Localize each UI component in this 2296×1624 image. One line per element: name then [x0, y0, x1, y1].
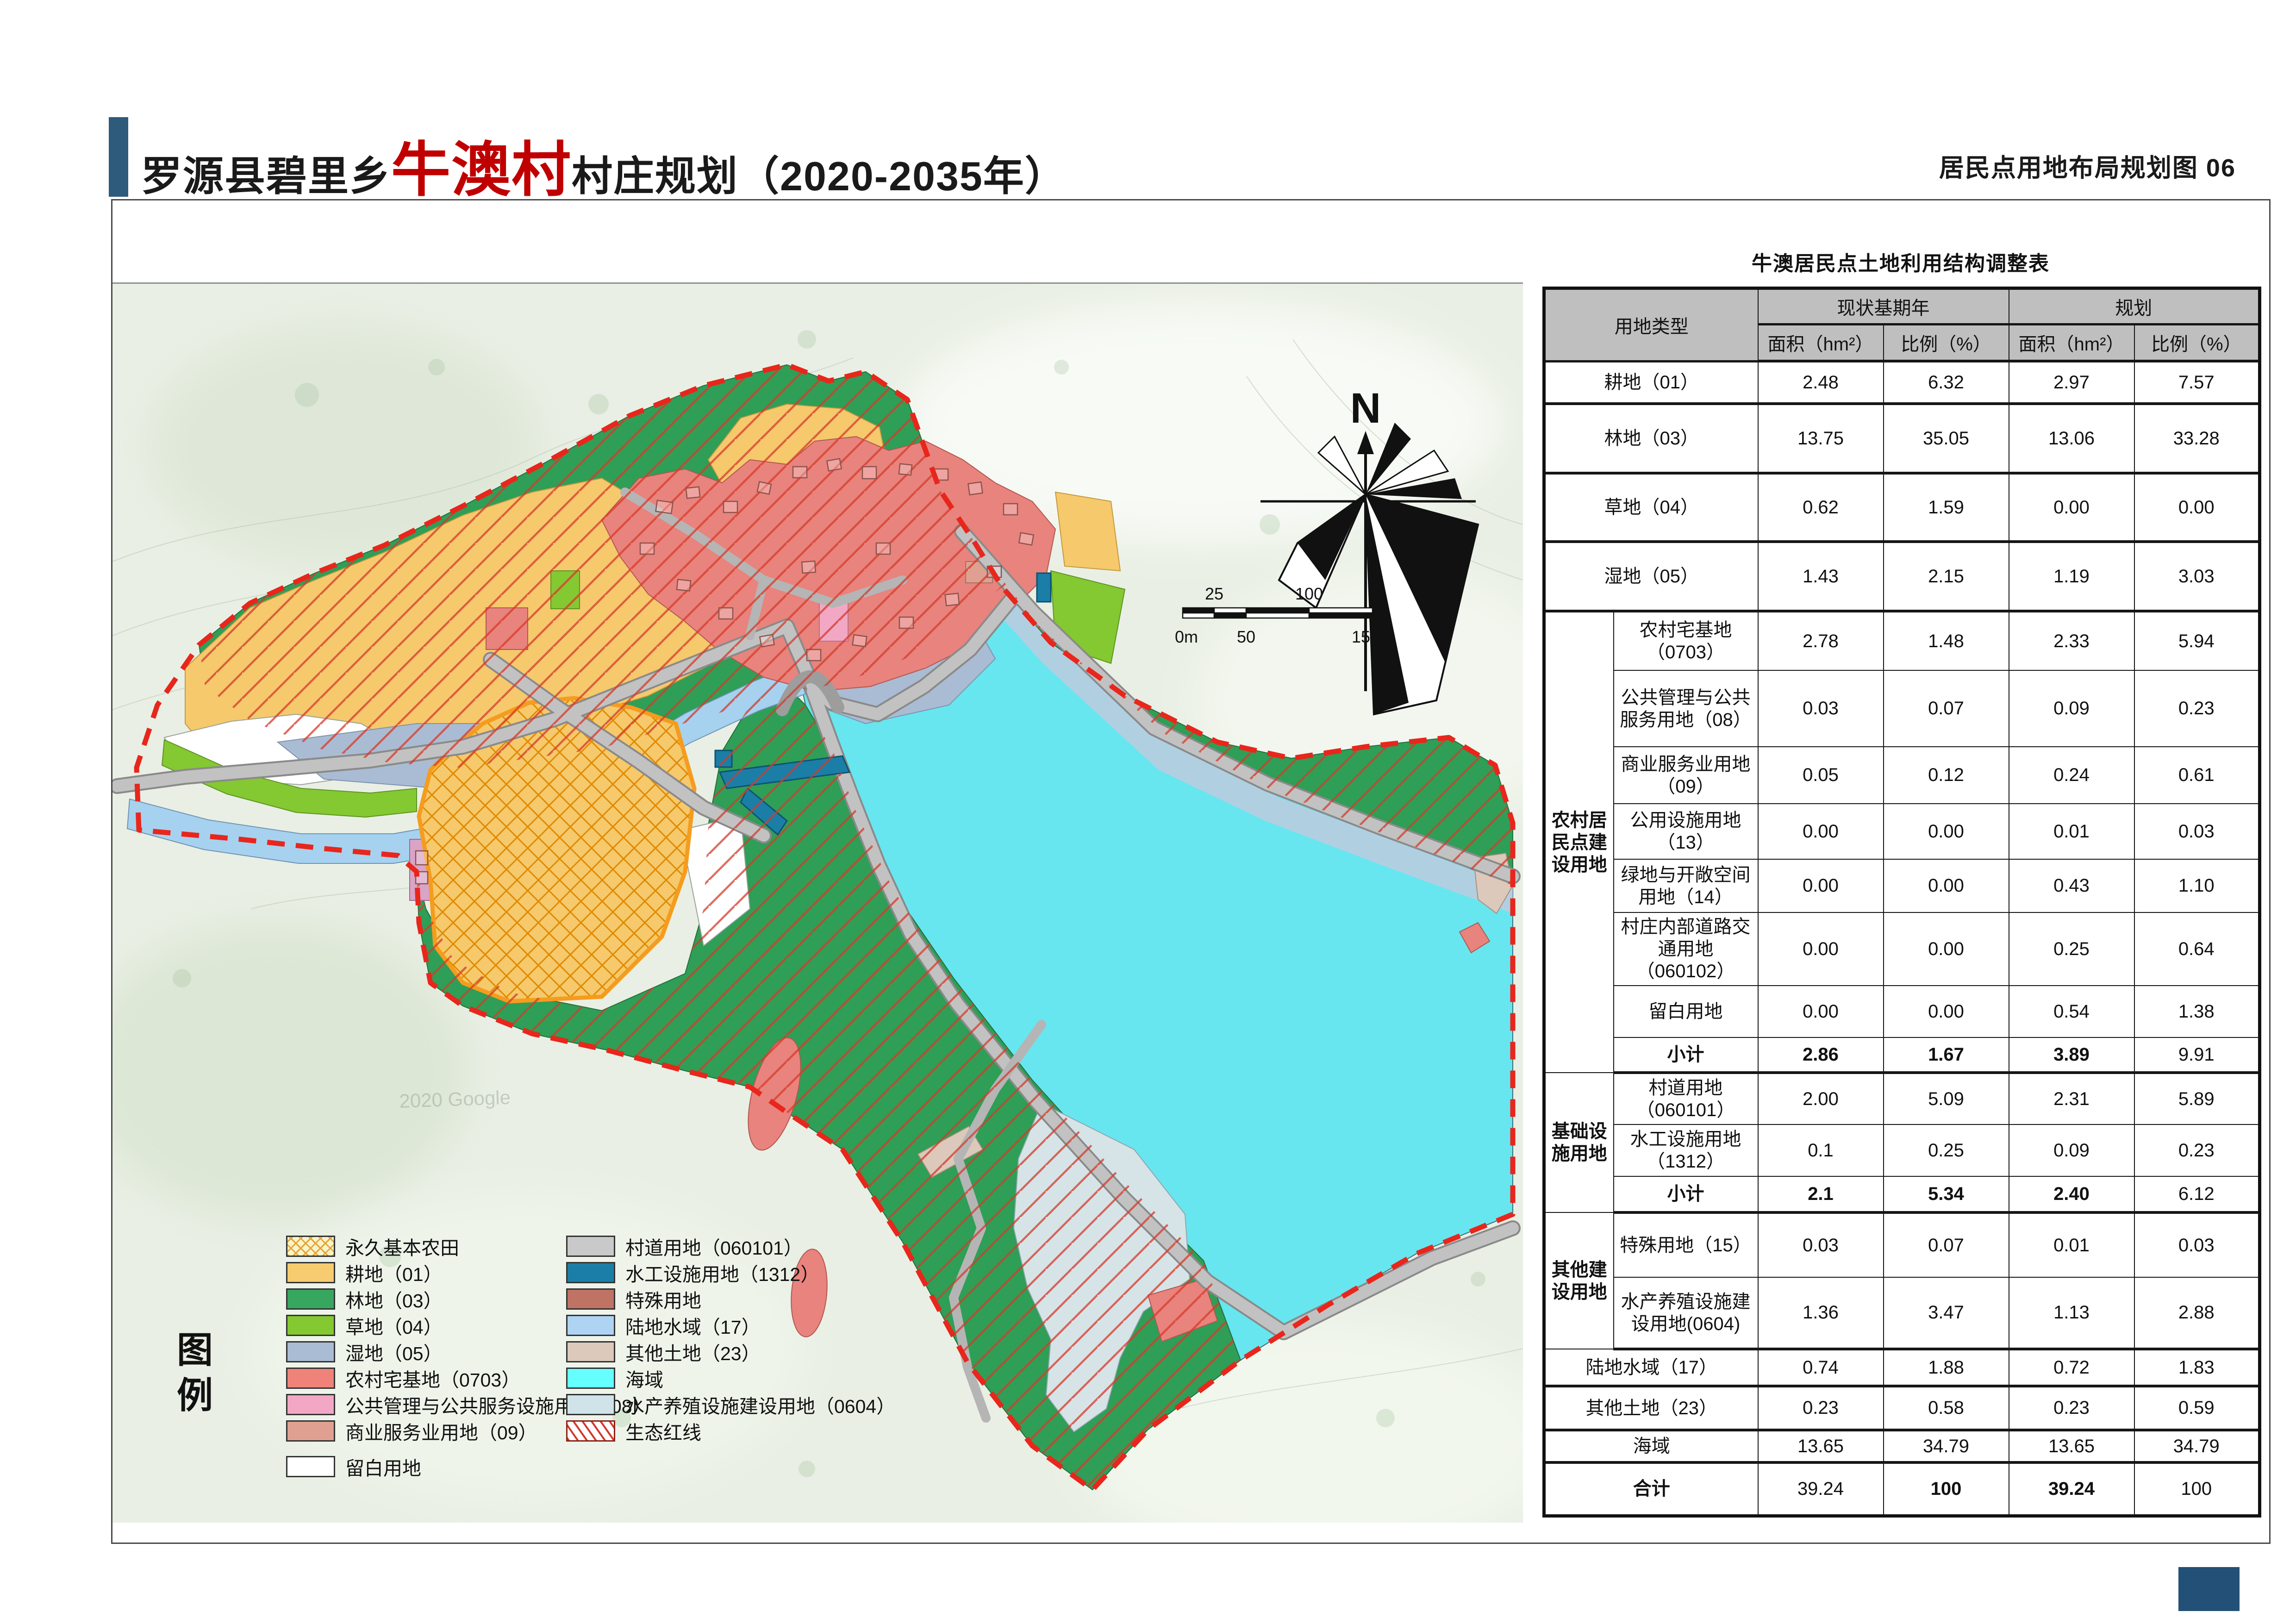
- legend-swatch: [566, 1368, 615, 1389]
- table-value-cell: 1.36: [1758, 1277, 1884, 1349]
- table-value-cell: 5.89: [2134, 1073, 2260, 1124]
- header-planned: 规划: [2009, 288, 2260, 325]
- header-ratio-current: 比例（%）: [1884, 325, 2009, 362]
- table-value-cell: 6.32: [1884, 361, 2009, 404]
- table-value-cell: 39.24: [1758, 1462, 1884, 1516]
- legend-swatch: [566, 1394, 615, 1415]
- table-value-cell: 2.78: [1758, 611, 1884, 670]
- table-value-cell: 2.97: [2009, 361, 2134, 404]
- table-value-cell: 0.61: [2134, 747, 2260, 804]
- table-value-cell: 33.28: [2134, 404, 2260, 473]
- table-value-cell: 13.06: [2009, 404, 2134, 473]
- table-row-label: 湿地（05）: [1544, 542, 1758, 611]
- table-value-cell: 0.00: [1758, 859, 1884, 912]
- table-value-cell: 0.05: [1758, 747, 1884, 804]
- table-value-cell: 13.65: [2009, 1430, 2134, 1462]
- table-row-label: 陆地水域（17）: [1544, 1349, 1758, 1386]
- header-landuse-type: 用地类型: [1544, 288, 1758, 362]
- table-row-label: 公共管理与公共服务用地（08）: [1614, 670, 1758, 747]
- table-value-cell: 0.72: [2009, 1349, 2134, 1386]
- legend-label: 海域: [625, 1364, 663, 1392]
- table-value-cell: 34.79: [1884, 1430, 2009, 1462]
- table-value-cell: 0.54: [2009, 986, 2134, 1037]
- table-value-cell: 0.09: [2009, 1124, 2134, 1176]
- table-value-cell: 7.57: [2134, 361, 2260, 404]
- table-value-cell: 39.24: [2009, 1462, 2134, 1516]
- table-row-label: 其他土地（23）: [1544, 1386, 1758, 1430]
- table-row: 湿地（05）1.432.151.193.03: [1544, 542, 2260, 611]
- page-title: 罗源县碧里乡 牛澳村 村庄规划（2020-2035年）: [141, 111, 1067, 197]
- legend-label: 耕地（01）: [345, 1259, 443, 1287]
- table-value-cell: 1.10: [2134, 859, 2260, 912]
- title-prefix: 罗源县碧里乡: [141, 156, 391, 197]
- table-value-cell: 0.09: [2009, 670, 2134, 747]
- table-value-cell: 0.00: [1758, 912, 1884, 986]
- table-value-cell: 5.94: [2134, 611, 2260, 670]
- legend-swatch: [286, 1262, 335, 1283]
- table-row: 其他建设用地特殊用地（15）0.030.070.010.03: [1544, 1212, 2260, 1277]
- legend-item: 村道用地（060101）: [566, 1235, 803, 1257]
- table-value-cell: 0.03: [1758, 670, 1884, 747]
- header-current-year: 现状基期年: [1758, 288, 2009, 325]
- legend-swatch: [286, 1420, 335, 1442]
- table-row: 村庄内部道路交通用地（060102）0.000.000.250.64: [1544, 912, 2260, 986]
- table-group-label: 其他建设用地: [1544, 1212, 1614, 1349]
- table-value-cell: 0.00: [1758, 986, 1884, 1037]
- table-value-cell: 0.07: [1884, 670, 2009, 747]
- legend-title: 图 例: [176, 1328, 213, 1418]
- svg-text:150m: 150m: [1352, 627, 1393, 646]
- legend-label: 村道用地（060101）: [625, 1232, 803, 1260]
- legend-label: 陆地水域（17）: [625, 1312, 761, 1339]
- table-row: 基础设施用地村道用地（060101）2.005.092.315.89: [1544, 1073, 2260, 1124]
- legend-label: 商业服务业用地（09）: [345, 1417, 537, 1445]
- table-value-cell: 100: [2134, 1462, 2260, 1516]
- table-row: 留白用地0.000.000.541.38: [1544, 986, 2260, 1037]
- legend-item: 永久基本农田: [286, 1235, 459, 1257]
- imagery-watermark: 2020 Google: [399, 1087, 511, 1112]
- table-value-cell: 0.59: [2134, 1386, 2260, 1430]
- svg-text:0m: 0m: [1175, 627, 1198, 646]
- table-row-label: 草地（04）: [1544, 473, 1758, 542]
- table-value-cell: 2.15: [1884, 542, 2009, 611]
- legend-swatch: [566, 1236, 615, 1257]
- legend-label: 水产养殖设施建设用地（0604）: [625, 1391, 895, 1418]
- landuse-table-panel: 牛澳居民点土地利用结构调整表 用地类型 现状基期年 规划 面积（hm²） 比例（…: [1542, 247, 2259, 1518]
- table-value-cell: 13.75: [1758, 404, 1884, 473]
- header-ratio-planned: 比例（%）: [2134, 325, 2260, 362]
- legend-swatch: [286, 1341, 335, 1362]
- legend-item: 生态红线: [566, 1420, 701, 1442]
- legend-swatch: [566, 1341, 615, 1362]
- table-row-label: 耕地（01）: [1544, 361, 1758, 404]
- table-value-cell: 0.74: [1758, 1349, 1884, 1386]
- table-value-cell: 0.58: [1884, 1386, 2009, 1430]
- table-value-cell: 2.31: [2009, 1073, 2134, 1124]
- page-number-block: [2178, 1567, 2240, 1611]
- table-value-cell: 5.09: [1884, 1073, 2009, 1124]
- legend-item: 陆地水域（17）: [566, 1314, 761, 1337]
- table-value-cell: 1.59: [1884, 473, 2009, 542]
- table-value-cell: 0.00: [1884, 859, 2009, 912]
- legend-item: 水工设施用地（1312）: [566, 1262, 819, 1284]
- legend-swatch: [286, 1288, 335, 1310]
- table-value-cell: 34.79: [2134, 1430, 2260, 1462]
- table-value-cell: 0.25: [2009, 912, 2134, 986]
- table-row-label: 公用设施用地（13）: [1614, 804, 1758, 859]
- table-value-cell: 3.47: [1884, 1277, 2009, 1349]
- table-value-cell: 2.1: [1758, 1176, 1884, 1212]
- table-row-label: 商业服务业用地（09）: [1614, 747, 1758, 804]
- table-value-cell: 2.33: [2009, 611, 2134, 670]
- table-row: 水产养殖设施建设用地(0604)1.363.471.132.88: [1544, 1277, 2260, 1349]
- table-row: 小计2.861.673.899.91: [1544, 1037, 2260, 1073]
- table-row-label: 村庄内部道路交通用地（060102）: [1614, 912, 1758, 986]
- table-value-cell: 0.23: [2134, 1124, 2260, 1176]
- content-frame: 2020 Google N: [111, 199, 2271, 1544]
- table-value-cell: 0.1: [1758, 1124, 1884, 1176]
- table-row-label: 小计: [1614, 1176, 1758, 1212]
- table-title: 牛澳居民点土地利用结构调整表: [1542, 247, 2259, 276]
- table-row-label: 合计: [1544, 1462, 1758, 1516]
- legend-label: 留白用地: [345, 1453, 421, 1480]
- legend-item: 水产养殖设施建设用地（0604）: [566, 1393, 895, 1416]
- legend-item: 商业服务业用地（09）: [286, 1420, 537, 1442]
- title-accent-bar: [109, 117, 128, 197]
- planning-map: 2020 Google N: [112, 282, 1523, 1523]
- table-value-cell: 1.38: [2134, 986, 2260, 1037]
- legend-label: 其他土地（23）: [625, 1338, 761, 1366]
- table-row-label: 农村宅基地（0703）: [1614, 611, 1758, 670]
- legend-label: 特殊用地: [625, 1285, 701, 1313]
- legend-label: 水工设施用地（1312）: [625, 1259, 819, 1287]
- table-value-cell: 13.65: [1758, 1430, 1884, 1462]
- legend-swatch: [566, 1262, 615, 1283]
- table-value-cell: 2.48: [1758, 361, 1884, 404]
- table-value-cell: 0.62: [1758, 473, 1884, 542]
- legend-swatch: [286, 1368, 335, 1389]
- legend-swatch: [566, 1420, 615, 1442]
- svg-text:100: 100: [1295, 584, 1323, 603]
- table-value-cell: 0.03: [1758, 1212, 1884, 1277]
- legend-label: 草地（04）: [345, 1312, 443, 1339]
- table-value-cell: 0.00: [1884, 804, 2009, 859]
- table-value-cell: 2.86: [1758, 1037, 1884, 1073]
- table-value-cell: 0.01: [2009, 804, 2134, 859]
- table-row: 陆地水域（17）0.741.880.721.83: [1544, 1349, 2260, 1386]
- table-row-label: 村道用地（060101）: [1614, 1073, 1758, 1124]
- legend-item: 林地（03）: [286, 1288, 443, 1310]
- table-value-cell: 0.01: [2009, 1212, 2134, 1277]
- table-row: 合计39.2410039.24100: [1544, 1462, 2260, 1516]
- legend-label: 湿地（05）: [345, 1338, 443, 1366]
- table-value-cell: 0.07: [1884, 1212, 2009, 1277]
- table-group-label: 基础设施用地: [1544, 1073, 1614, 1212]
- table-value-cell: 0.23: [2134, 670, 2260, 747]
- page: 罗源县碧里乡 牛澳村 村庄规划（2020-2035年） 居民点用地布局规划图 0…: [0, 0, 2296, 1624]
- table-value-cell: 0.24: [2009, 747, 2134, 804]
- table-value-cell: 1.48: [1884, 611, 2009, 670]
- table-value-cell: 1.19: [2009, 542, 2134, 611]
- table-value-cell: 0.00: [2009, 473, 2134, 542]
- table-value-cell: 0.23: [1758, 1386, 1884, 1430]
- table-row-label: 林地（03）: [1544, 404, 1758, 473]
- legend-label: 林地（03）: [345, 1285, 443, 1313]
- table-row: 公用设施用地（13）0.000.000.010.03: [1544, 804, 2260, 859]
- legend-item: 农村宅基地（0703）: [286, 1367, 520, 1389]
- table-value-cell: 0.00: [1884, 912, 2009, 986]
- table-value-cell: 35.05: [1884, 404, 2009, 473]
- table-value-cell: 0.43: [2009, 859, 2134, 912]
- table-value-cell: 100: [1884, 1462, 2009, 1516]
- legend-swatch: [286, 1236, 335, 1257]
- table-value-cell: 0.03: [2134, 1212, 2260, 1277]
- table-row: 小计2.15.342.406.12: [1544, 1176, 2260, 1212]
- table-row: 耕地（01）2.486.322.977.57: [1544, 361, 2260, 404]
- table-row: 绿地与开敞空间用地（14）0.000.000.431.10: [1544, 859, 2260, 912]
- legend-swatch: [566, 1315, 615, 1336]
- table-row: 林地（03）13.7535.0513.0633.28: [1544, 404, 2260, 473]
- table-value-cell: 1.43: [1758, 542, 1884, 611]
- legend-label: 生态红线: [625, 1417, 701, 1445]
- table-row: 公共管理与公共服务用地（08）0.030.070.090.23: [1544, 670, 2260, 747]
- legend-item: 草地（04）: [286, 1314, 443, 1337]
- table-row: 海域13.6534.7913.6534.79: [1544, 1430, 2260, 1462]
- table-value-cell: 1.88: [1884, 1349, 2009, 1386]
- table-value-cell: 0.12: [1884, 747, 2009, 804]
- table-row: 草地（04）0.621.590.000.00: [1544, 473, 2260, 542]
- table-row: 商业服务业用地（09）0.050.120.240.61: [1544, 747, 2260, 804]
- legend-item: 耕地（01）: [286, 1262, 443, 1284]
- table-value-cell: 5.34: [1884, 1176, 2009, 1212]
- legend-item: 留白用地: [286, 1455, 421, 1478]
- table-row: 农村居民点建设用地农村宅基地（0703）2.781.482.335.94: [1544, 611, 2260, 670]
- title-village-name: 牛澳村: [391, 144, 572, 197]
- table-value-cell: 2.88: [2134, 1277, 2260, 1349]
- table-row-label: 水工设施用地（1312）: [1614, 1124, 1758, 1176]
- table-value-cell: 2.00: [1758, 1073, 1884, 1124]
- table-value-cell: 0.64: [2134, 912, 2260, 986]
- table-value-cell: 0.00: [2134, 473, 2260, 542]
- table-value-cell: 1.13: [2009, 1277, 2134, 1349]
- table-value-cell: 2.40: [2009, 1176, 2134, 1212]
- table-row-label: 特殊用地（15）: [1614, 1212, 1758, 1277]
- legend-label: 农村宅基地（0703）: [345, 1364, 520, 1392]
- table-row: 其他土地（23）0.230.580.230.59: [1544, 1386, 2260, 1430]
- legend-item: 特殊用地: [566, 1288, 701, 1310]
- legend-item: 其他土地（23）: [566, 1341, 761, 1363]
- map-canvas: 2020 Google N: [112, 284, 1523, 1523]
- table-row: 水工设施用地（1312）0.10.250.090.23: [1544, 1124, 2260, 1176]
- title-suffix: 村庄规划（2020-2035年）: [572, 156, 1067, 197]
- legend-item: 海域: [566, 1367, 663, 1389]
- legend-swatch: [566, 1288, 615, 1310]
- table-row-label: 水产养殖设施建设用地(0604): [1614, 1277, 1758, 1349]
- table-group-label: 农村居民点建设用地: [1544, 611, 1614, 1073]
- legend-item: 湿地（05）: [286, 1341, 443, 1363]
- header-area-planned: 面积（hm²）: [2009, 325, 2134, 362]
- sheet-title: 居民点用地布局规划图 06: [1939, 147, 2236, 184]
- table-row-label: 留白用地: [1614, 986, 1758, 1037]
- table-value-cell: 6.12: [2134, 1176, 2260, 1212]
- table-value-cell: 3.03: [2134, 542, 2260, 611]
- table-value-cell: 0.00: [1758, 804, 1884, 859]
- table-value-cell: 0.23: [2009, 1386, 2134, 1430]
- table-value-cell: 1.67: [1884, 1037, 2009, 1073]
- table-row-label: 海域: [1544, 1430, 1758, 1462]
- legend-swatch: [286, 1394, 335, 1415]
- landuse-table: 用地类型 现状基期年 规划 面积（hm²） 比例（%） 面积（hm²） 比例（%…: [1542, 287, 2261, 1518]
- svg-text:N: N: [1350, 385, 1381, 432]
- table-value-cell: 0.00: [1884, 986, 2009, 1037]
- table-value-cell: 0.25: [1884, 1124, 2009, 1176]
- table-value-cell: 3.89: [2009, 1037, 2134, 1073]
- legend-swatch: [286, 1456, 335, 1477]
- table-value-cell: 0.03: [2134, 804, 2260, 859]
- table-row-label: 小计: [1614, 1037, 1758, 1073]
- legend-swatch: [286, 1315, 335, 1336]
- table-value-cell: 9.91: [2134, 1037, 2260, 1073]
- svg-text:25: 25: [1205, 584, 1223, 603]
- legend-label: 永久基本农田: [345, 1232, 459, 1260]
- svg-text:50: 50: [1237, 627, 1255, 646]
- table-row-label: 绿地与开敞空间用地（14）: [1614, 859, 1758, 912]
- table-value-cell: 1.83: [2134, 1349, 2260, 1386]
- header-area-current: 面积（hm²）: [1758, 325, 1884, 362]
